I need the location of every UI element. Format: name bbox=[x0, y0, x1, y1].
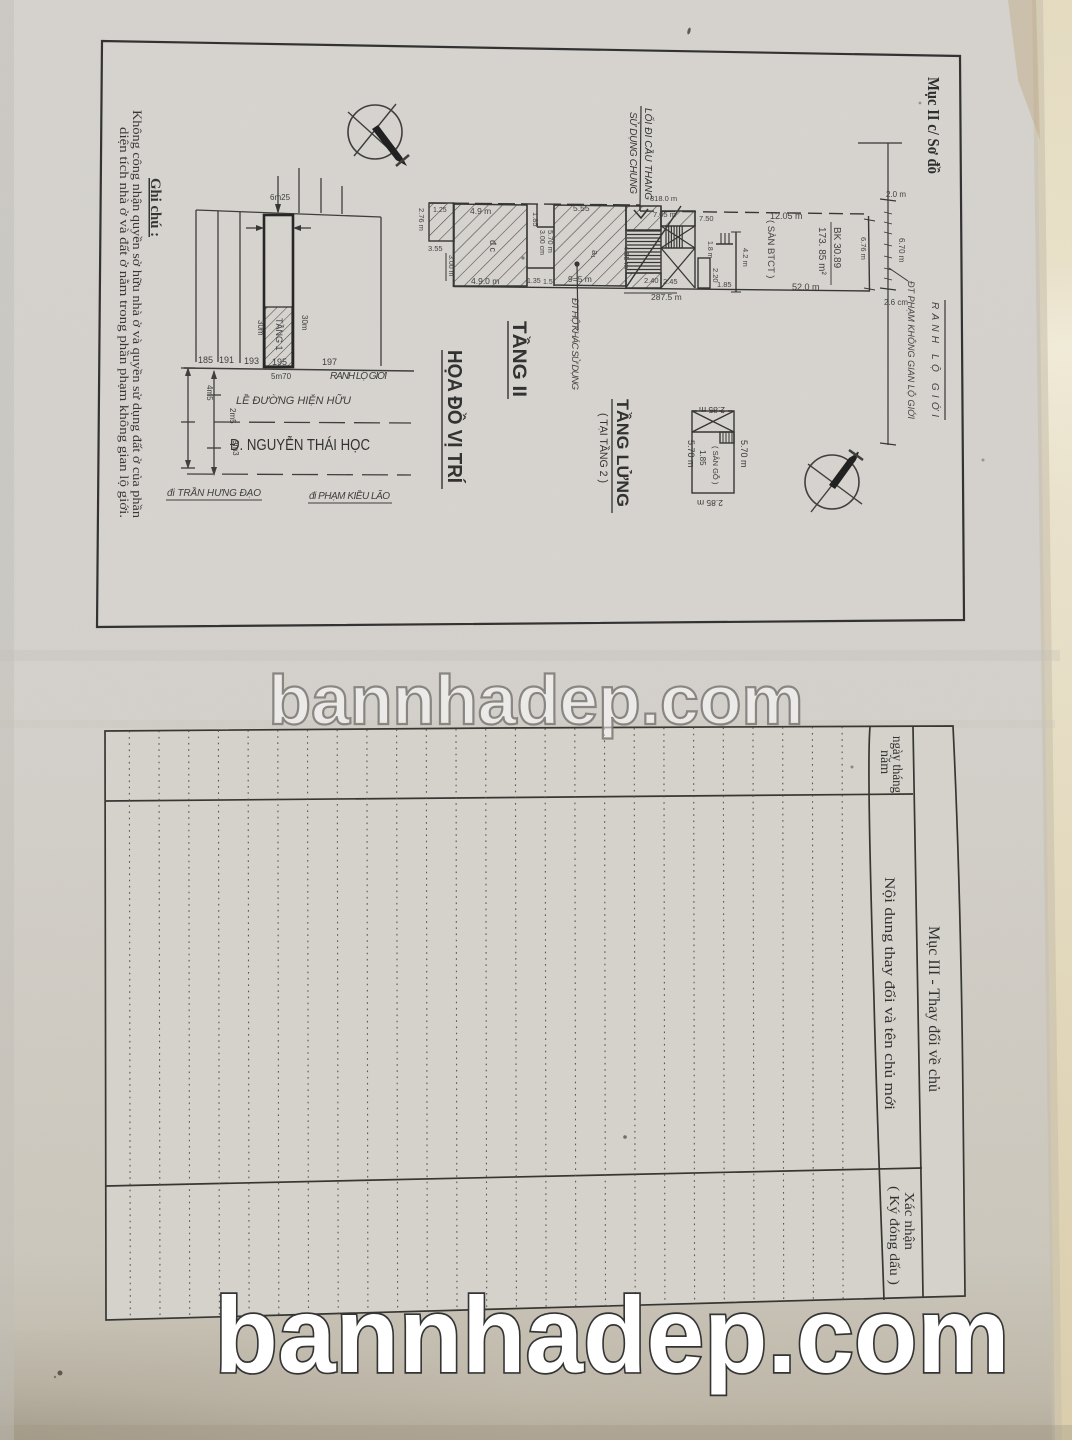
svg-text:bannhadep.com: bannhadep.com bbox=[269, 661, 804, 739]
svg-text:bannhadep.com: bannhadep.com bbox=[215, 1274, 1010, 1395]
